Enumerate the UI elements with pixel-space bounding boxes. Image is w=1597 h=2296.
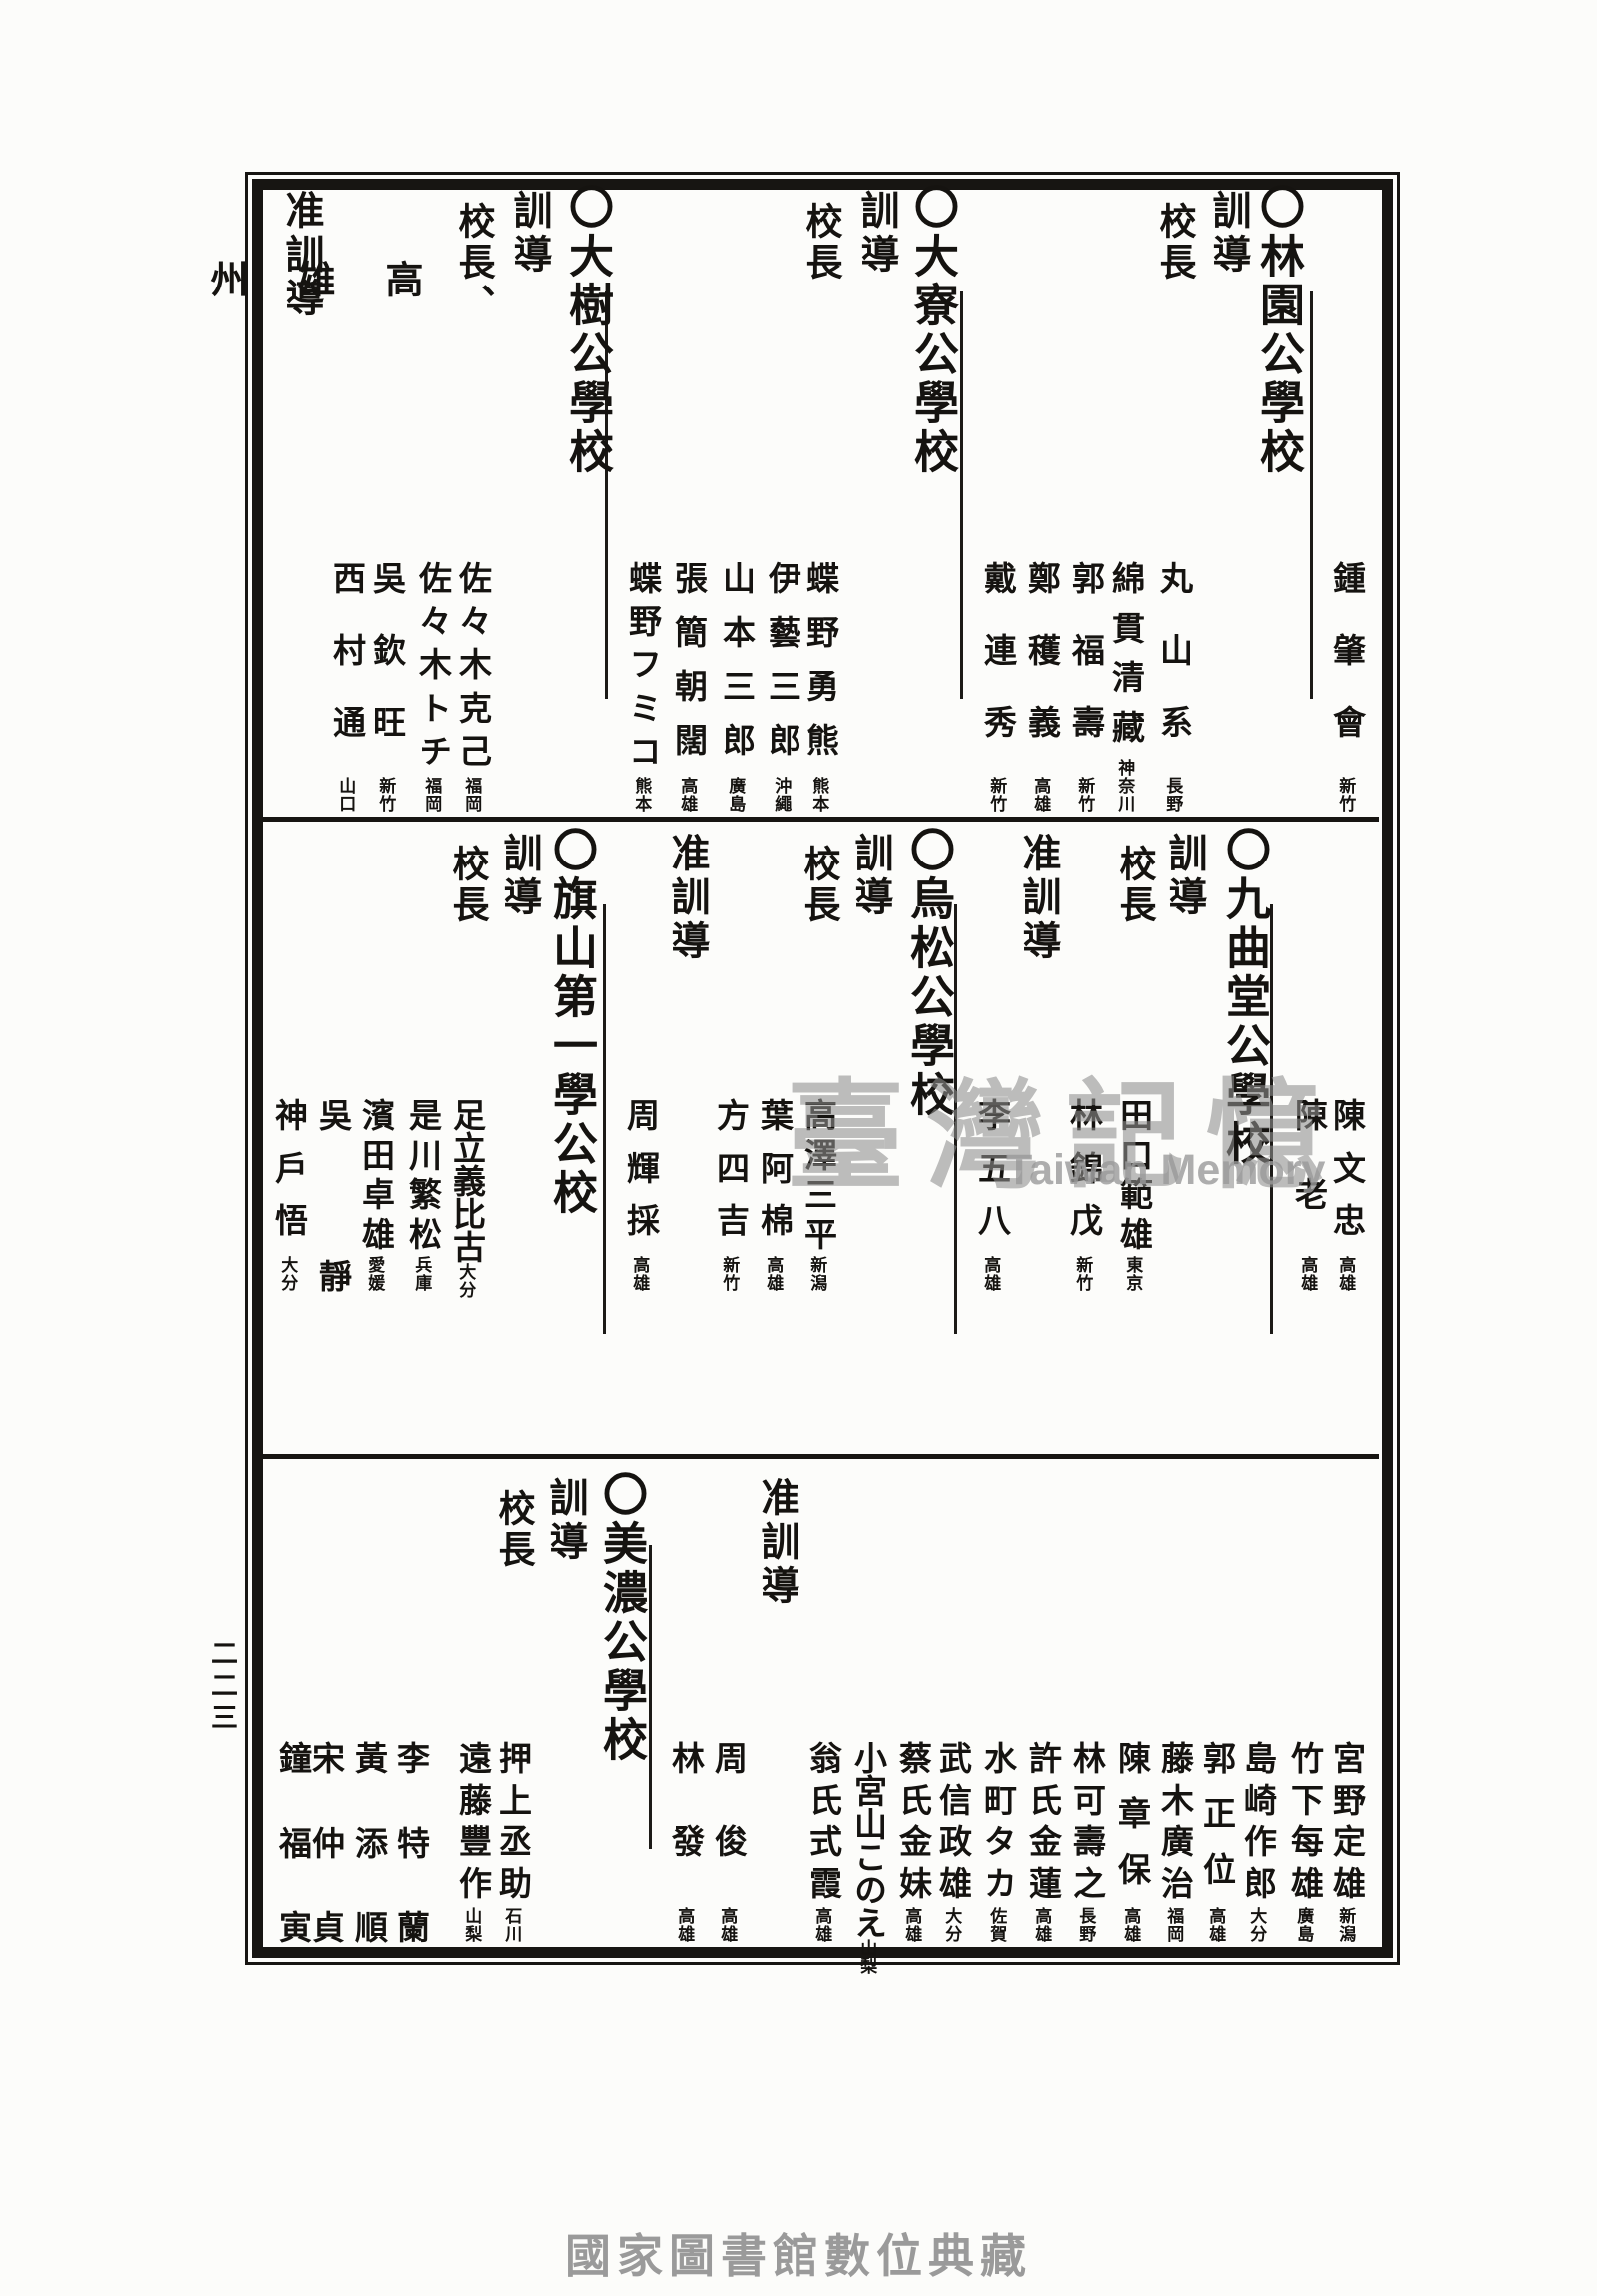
name-char: 阿 [757, 1151, 790, 1184]
name-char: 添 [351, 1826, 384, 1859]
name-char: 町 [980, 1783, 1013, 1816]
origin-note: 愛媛 [365, 1256, 383, 1292]
origin-note: 高雄 [812, 1907, 830, 1943]
staff-column: 郭正位高雄 [1195, 1477, 1237, 1943]
name-char: 西 [329, 561, 362, 594]
school-title: 〇大樹公學校 [553, 184, 609, 477]
origin-note: 新竹 [376, 777, 394, 813]
role-label: 訓導 [491, 833, 539, 920]
section-rule [1310, 291, 1313, 699]
name-char: 蝶 [802, 561, 835, 594]
name-char: 郎 [765, 723, 798, 756]
name-char: 豐 [455, 1824, 488, 1857]
staff-name: 高澤三平新潟 [797, 1098, 836, 1292]
name-char: 葉 [757, 1098, 790, 1131]
name-char: 發 [668, 1824, 701, 1857]
staff-name: 周俊高雄 [707, 1741, 747, 1943]
origin-note: 神奈川 [1115, 759, 1133, 813]
name-char: 正 [1199, 1796, 1232, 1829]
name-char: の [850, 1873, 883, 1906]
name-char: 式 [805, 1824, 838, 1857]
name-char: 金 [1025, 1824, 1058, 1857]
name-char: 比 [449, 1197, 482, 1230]
name-char: コ [625, 734, 658, 767]
staff-name: 陳文忠高雄 [1326, 1098, 1365, 1292]
name-char: 山 [719, 561, 752, 594]
name-char: 張 [671, 561, 704, 594]
origin-note: 高雄 [718, 1907, 736, 1943]
name-char: 郭 [1199, 1741, 1232, 1774]
name-char: 蓮 [1025, 1866, 1058, 1899]
name-char: 平 [800, 1217, 833, 1250]
staff-column: 周俊高雄 [707, 1477, 749, 1943]
origin-note: 新潟 [807, 1256, 825, 1292]
staff-column: 陳文忠高雄 [1326, 833, 1367, 1292]
school-title: 〇林園公學校 [1244, 184, 1300, 477]
name-char: 村 [329, 633, 362, 666]
name-char: 會 [1330, 705, 1362, 738]
name-char: 連 [980, 633, 1013, 666]
name-char: 武 [935, 1741, 968, 1774]
name-char: 氏 [895, 1783, 928, 1816]
name-char: 簡 [671, 615, 704, 648]
role-label: 准訓導 [749, 1477, 797, 1609]
origin-note: 福岡 [462, 777, 480, 813]
name-char: 雄 [1330, 1866, 1362, 1899]
origin-note: 高雄 [678, 777, 696, 813]
role-label: 訓導 [1156, 833, 1204, 920]
name-char: 壽 [1068, 705, 1101, 738]
staff-name: 吳靜 [311, 1098, 351, 1292]
name-char: 李 [974, 1098, 1007, 1131]
name-char: 穫 [1024, 633, 1057, 666]
name-char: 田 [1116, 1098, 1149, 1131]
staff-column: 葉阿棉高雄 [753, 833, 795, 1292]
name-char: 木 [455, 647, 488, 680]
name-char: 澤 [800, 1138, 833, 1171]
staff-name: 山本三郎廣島 [715, 561, 755, 813]
origin-note: 沖繩 [772, 777, 790, 813]
staff-name: 鍾肇會新竹 [1326, 561, 1365, 813]
staff-name: 林錦戊新竹 [1062, 1098, 1102, 1292]
staff-name: 佐々木克己福岡 [451, 561, 491, 813]
staff-column: 許氏金蓮高雄 [1021, 1477, 1063, 1943]
name-char: 林 [1069, 1741, 1102, 1774]
staff-column: 校長、佐々木克己福岡 [451, 190, 493, 813]
name-char: 壽 [1069, 1824, 1102, 1857]
name-char: 野 [802, 615, 835, 648]
school-title: 〇九曲堂公學校 [1210, 827, 1266, 1169]
name-char: 雄 [358, 1217, 391, 1250]
name-char: 特 [393, 1826, 426, 1859]
role-label: 校長、 [454, 202, 491, 324]
name-char: 遠 [455, 1741, 488, 1774]
staff-name: 林發高雄 [664, 1741, 704, 1943]
section-rule [954, 904, 957, 1334]
name-char: 福 [275, 1826, 308, 1859]
staff-name: 翁氏式霞高雄 [801, 1741, 841, 1943]
name-char: 郎 [719, 723, 752, 756]
name-char: 宮 [1330, 1741, 1362, 1774]
name-char: 廣 [1157, 1824, 1190, 1857]
role-label: 校長 [799, 845, 836, 926]
staff-name: 蝶野フミコ熊本 [621, 561, 661, 813]
origin-note: 廣島 [1294, 1907, 1312, 1943]
staff-column: 宮野定雄新潟 [1326, 1477, 1367, 1943]
school-title: 〇旗山第一學公校 [537, 827, 593, 1218]
name-char: 小 [850, 1741, 883, 1774]
name-char: 福 [1068, 633, 1101, 666]
origin-note: 高雄 [764, 1256, 782, 1292]
staff-name: 田口範雄東京 [1112, 1098, 1152, 1292]
staff-column: 山本三郎廣島 [715, 190, 757, 813]
origin-note: 高雄 [1206, 1907, 1224, 1943]
staff-column: 吳欽旺新竹 [365, 190, 407, 813]
staff-column: 武信政雄大分 [931, 1477, 973, 1943]
name-char: 丸 [1156, 561, 1189, 594]
section-rule [1270, 904, 1273, 1334]
name-char: 陳 [1330, 1098, 1362, 1131]
name-char: 氏 [805, 1783, 838, 1816]
staff-name: 李五八高雄 [970, 1098, 1010, 1292]
origin-note: 新竹 [1075, 777, 1093, 813]
staff-column: 小宮山このえ山梨 [846, 1477, 888, 1943]
school-title: 〇烏松公學校 [894, 827, 950, 1120]
staff-name: 吳欽旺新竹 [365, 561, 405, 813]
origin-note: 高雄 [1121, 1907, 1139, 1943]
name-char: 清 [1108, 660, 1141, 693]
role-label: 訓導 [848, 190, 896, 278]
origin-note: 高雄 [1031, 777, 1049, 813]
role-label: 訓導 [1200, 190, 1248, 278]
staff-column: 李五八高雄 [970, 833, 1012, 1292]
name-char: 木 [415, 647, 448, 680]
staff-column: 水町タカ佐賀 [976, 1477, 1018, 1943]
name-char: 口 [1116, 1138, 1149, 1171]
name-char: 陳 [1291, 1098, 1324, 1131]
staff-column: 方四吉新竹 [709, 833, 751, 1292]
name-char: チ [415, 734, 448, 767]
staff-column: 林發高雄 [664, 1477, 706, 1943]
name-char: 黃 [351, 1741, 384, 1774]
staff-column: 陳章保高雄 [1110, 1477, 1152, 1943]
name-char: 陳 [1114, 1741, 1147, 1774]
school-title: 〇美濃公學校 [587, 1471, 643, 1765]
name-char: 押 [495, 1741, 528, 1774]
name-char: 田 [358, 1138, 391, 1171]
staff-column: 蔡氏金妹高雄 [891, 1477, 933, 1943]
staff-name: 戴連秀新竹 [976, 561, 1016, 813]
staff-name: 武信政雄大分 [931, 1741, 971, 1943]
staff-name: 李特蘭 [389, 1741, 429, 1943]
name-char: 雄 [1116, 1217, 1149, 1250]
name-char: 信 [935, 1783, 968, 1816]
role-label: 訓導 [842, 833, 890, 920]
name-char: 可 [1069, 1783, 1102, 1816]
name-char: ミ [625, 691, 658, 724]
name-char: 克 [455, 691, 488, 724]
staff-column: 鄭穫義高雄 [1020, 190, 1062, 813]
role-label: 校長 [1115, 845, 1152, 926]
staff-column: 佐々木トチ福岡 [411, 190, 453, 813]
name-char: 輝 [623, 1151, 656, 1184]
name-char: 松 [405, 1217, 438, 1250]
name-char: フ [625, 647, 658, 680]
name-char: 卓 [358, 1177, 391, 1210]
name-char: 戴 [980, 561, 1013, 594]
name-char: 系 [1156, 705, 1189, 738]
name-char: 五 [974, 1151, 1007, 1184]
name-char: 治 [1157, 1866, 1190, 1899]
name-char: こ [850, 1840, 883, 1873]
origin-note: 福岡 [422, 777, 440, 813]
name-char: 助 [495, 1866, 528, 1899]
name-char: 靜 [315, 1259, 348, 1292]
staff-column: 林可壽之長野 [1065, 1477, 1107, 1943]
section-rule [603, 904, 606, 1334]
role-label: 准訓導 [659, 833, 707, 964]
staff-name: 方四吉新竹 [709, 1098, 749, 1292]
role-label: 校長 [494, 1489, 531, 1571]
name-char: 順 [351, 1910, 384, 1943]
name-char: 下 [1287, 1783, 1320, 1816]
name-char: 四 [713, 1151, 746, 1184]
name-char: 肇 [1330, 633, 1362, 666]
name-char: 金 [895, 1824, 928, 1857]
origin-note: 高雄 [1298, 1256, 1316, 1292]
origin-note: 山梨 [857, 1939, 875, 1975]
name-char: 貫 [1108, 611, 1141, 644]
origin-note: 大分 [278, 1256, 296, 1292]
staff-name: 黃添順 [347, 1741, 387, 1943]
staff-name: 押上丞助石川 [491, 1741, 531, 1943]
name-char: 熊 [802, 723, 835, 756]
name-char: 三 [800, 1177, 833, 1210]
name-char: 章 [1114, 1796, 1147, 1829]
name-char: 欽 [369, 633, 402, 666]
name-char: 雄 [1287, 1866, 1320, 1899]
name-char: 氏 [1025, 1783, 1058, 1816]
staff-name: 是川繁松兵庫 [401, 1098, 441, 1292]
staff-column: 遠藤豐作山梨 [451, 1477, 493, 1943]
staff-name: 竹下每雄廣島 [1283, 1741, 1323, 1943]
name-char: 野 [1330, 1783, 1362, 1816]
staff-name: 足立義比古大分 [445, 1098, 485, 1292]
origin-note: 新竹 [1073, 1256, 1091, 1292]
staff-name: 西村通山口 [325, 561, 365, 813]
name-char: 藝 [765, 615, 798, 648]
name-char: 竹 [1287, 1741, 1320, 1774]
name-char: 伊 [765, 561, 798, 594]
staff-column: 李特蘭 [389, 1477, 431, 1943]
name-char: 藤 [1157, 1741, 1190, 1774]
origin-note: 兵庫 [412, 1256, 430, 1292]
name-char: 作 [1240, 1824, 1273, 1857]
role-label: 校長 [448, 845, 485, 926]
origin-note: 廣島 [726, 777, 744, 813]
name-char: 忠 [1330, 1203, 1362, 1236]
name-char: 勇 [802, 669, 835, 702]
staff-column: 綿貫清藏神奈川 [1104, 190, 1146, 813]
name-char: 棉 [757, 1203, 790, 1236]
name-char: 吉 [713, 1203, 746, 1236]
name-char: 錦 [1066, 1151, 1099, 1184]
staff-column: 翁氏式霞高雄 [801, 1477, 843, 1943]
staff-name: 許氏金蓮高雄 [1021, 1741, 1061, 1943]
name-char: 李 [393, 1741, 426, 1774]
name-char: 三 [765, 669, 798, 702]
name-char: 朝 [671, 669, 704, 702]
origin-note: 高雄 [902, 1907, 920, 1943]
origin-note: 高雄 [1032, 1907, 1050, 1943]
origin-note: 長野 [1076, 1907, 1094, 1943]
name-char: 鐘 [275, 1741, 308, 1774]
name-char: 周 [711, 1741, 744, 1774]
name-char: タ [980, 1824, 1013, 1857]
name-char: 高 [800, 1098, 833, 1131]
name-char: 作 [455, 1866, 488, 1899]
origin-note: 新竹 [720, 1256, 738, 1292]
staff-column: 鐘福寅 [271, 1477, 313, 1943]
staff-name: 郭福壽新竹 [1064, 561, 1104, 813]
name-char: 周 [623, 1098, 656, 1131]
origin-note: 高雄 [630, 1256, 648, 1292]
staff-name: 宮野定雄新潟 [1326, 1741, 1365, 1943]
name-char: ト [415, 691, 448, 724]
name-char: 老 [1291, 1177, 1324, 1210]
name-char: 悟 [271, 1203, 304, 1236]
name-char: 藤 [455, 1783, 488, 1816]
staff-name: 郭正位高雄 [1195, 1741, 1235, 1943]
name-char: 島 [1240, 1741, 1273, 1774]
name-char: 每 [1287, 1824, 1320, 1857]
staff-column: 校長高澤三平新潟 [797, 833, 838, 1292]
role-label: 訓導 [537, 1477, 585, 1565]
name-char: 木 [1157, 1783, 1190, 1816]
name-char: 鍾 [1330, 561, 1362, 594]
staff-column: 藤木廣治福岡 [1153, 1477, 1195, 1943]
staff-name: 張簡朝闊高雄 [667, 561, 707, 813]
staff-name: 丸山系長野 [1152, 561, 1192, 813]
staff-column: 島崎作郎大分 [1236, 1477, 1278, 1943]
name-char: 立 [449, 1131, 482, 1164]
name-char: 宮 [850, 1774, 883, 1807]
name-char: 三 [719, 669, 752, 702]
name-char: 寅 [275, 1910, 308, 1943]
name-char: 崎 [1240, 1783, 1273, 1816]
origin-note: 大分 [942, 1907, 960, 1943]
name-char: 佐 [455, 561, 488, 594]
name-char: 戶 [271, 1151, 304, 1184]
name-char: 霞 [805, 1866, 838, 1899]
staff-name: 濱田卓雄愛媛 [354, 1098, 394, 1292]
name-char: 林 [1066, 1098, 1099, 1131]
name-char: 丞 [495, 1824, 528, 1857]
name-char: 上 [495, 1783, 528, 1816]
name-char: 蝶 [625, 561, 658, 594]
staff-name: 神戶悟大分 [267, 1098, 307, 1292]
role-label: 校長 [1155, 202, 1192, 284]
name-char: 綿 [1108, 561, 1141, 594]
name-char: 採 [623, 1203, 656, 1236]
staff-column: 周輝採高雄 [619, 833, 661, 1292]
staff-column: 校長押上丞助石川 [491, 1477, 533, 1943]
name-char: 位 [1199, 1852, 1232, 1885]
origin-note: 石川 [502, 1907, 520, 1943]
role-label: 准訓導 [273, 190, 321, 321]
name-char: 方 [713, 1098, 746, 1131]
origin-note: 高雄 [675, 1907, 693, 1943]
staff-name: 遠藤豐作山梨 [451, 1741, 491, 1943]
name-char: 足 [449, 1098, 482, 1131]
role-label: 校長 [801, 202, 838, 284]
name-char: 本 [719, 615, 752, 648]
staff-column: 戴連秀新竹 [976, 190, 1018, 813]
staff-column: 吳靜 [311, 833, 353, 1292]
origin-note: 山口 [336, 777, 354, 813]
name-char: 林 [668, 1741, 701, 1774]
staff-name: 陳老高雄 [1287, 1098, 1327, 1292]
name-char: え [850, 1906, 883, 1939]
name-char: 郭 [1068, 561, 1101, 594]
staff-name: 島崎作郎大分 [1236, 1741, 1276, 1943]
name-char: 濱 [358, 1098, 391, 1131]
origin-note: 新竹 [1336, 777, 1354, 813]
staff-column: 校長丸山系長野 [1152, 190, 1194, 813]
name-char: 川 [405, 1138, 438, 1171]
name-char: 山 [850, 1807, 883, 1840]
role-label: 訓導 [501, 190, 549, 278]
directory-content: 鍾肇會新竹〇林園公學校訓導校長丸山系長野綿貫清藏神奈川郭福壽新竹鄭穫義高雄戴連秀… [0, 0, 1597, 2296]
staff-name: 綿貫清藏神奈川 [1104, 561, 1144, 813]
name-char: 翁 [805, 1741, 838, 1774]
name-char: 蘭 [393, 1910, 426, 1943]
name-char: 己 [455, 734, 488, 767]
name-char: 是 [405, 1098, 438, 1131]
staff-column: 林錦戊新竹 [1062, 833, 1104, 1292]
staff-column: 陳老高雄 [1287, 833, 1329, 1292]
name-char: 旺 [369, 705, 402, 738]
origin-note: 大分 [456, 1263, 474, 1299]
name-char: 鄭 [1024, 561, 1057, 594]
staff-column: 校長田口範雄東京 [1112, 833, 1154, 1292]
name-char: 定 [1330, 1824, 1362, 1857]
name-char: 妹 [895, 1866, 928, 1899]
section-rule [649, 1545, 652, 1849]
role-label: 准訓導 [1010, 833, 1058, 964]
name-char: 神 [271, 1098, 304, 1131]
name-char: 水 [980, 1741, 1013, 1774]
name-char: 範 [1116, 1177, 1149, 1210]
staff-column: 郭福壽新竹 [1064, 190, 1106, 813]
staff-column: 黃添順 [347, 1477, 389, 1943]
name-char: 許 [1025, 1741, 1058, 1774]
staff-name: 周輝採高雄 [619, 1098, 659, 1292]
origin-note: 佐賀 [987, 1907, 1005, 1943]
name-char: 郎 [1240, 1866, 1273, 1899]
name-char: 々 [415, 604, 448, 637]
staff-column: 鍾肇會新竹 [1326, 190, 1367, 813]
name-char: 々 [455, 604, 488, 637]
name-char: 之 [1069, 1866, 1102, 1899]
name-char: 俊 [711, 1824, 744, 1857]
origin-note: 高雄 [1336, 1256, 1354, 1292]
name-char: 吳 [315, 1098, 348, 1131]
staff-name: 鄭穫義高雄 [1020, 561, 1060, 813]
name-char: 佐 [415, 561, 448, 594]
origin-note: 大分 [1247, 1907, 1265, 1943]
staff-column: 神戶悟大分 [267, 833, 309, 1292]
